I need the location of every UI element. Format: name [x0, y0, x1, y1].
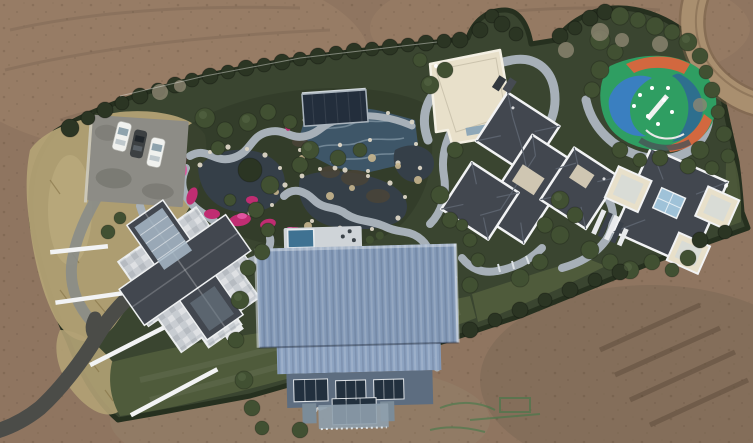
- rooftop-pool: [288, 229, 314, 248]
- parking-area: [84, 113, 189, 210]
- deck: [318, 403, 389, 429]
- aerial-photo-stage: [0, 0, 753, 443]
- garden-pergola: [302, 88, 368, 126]
- aerial-photo: [0, 0, 753, 443]
- side-stairs: [302, 403, 317, 423]
